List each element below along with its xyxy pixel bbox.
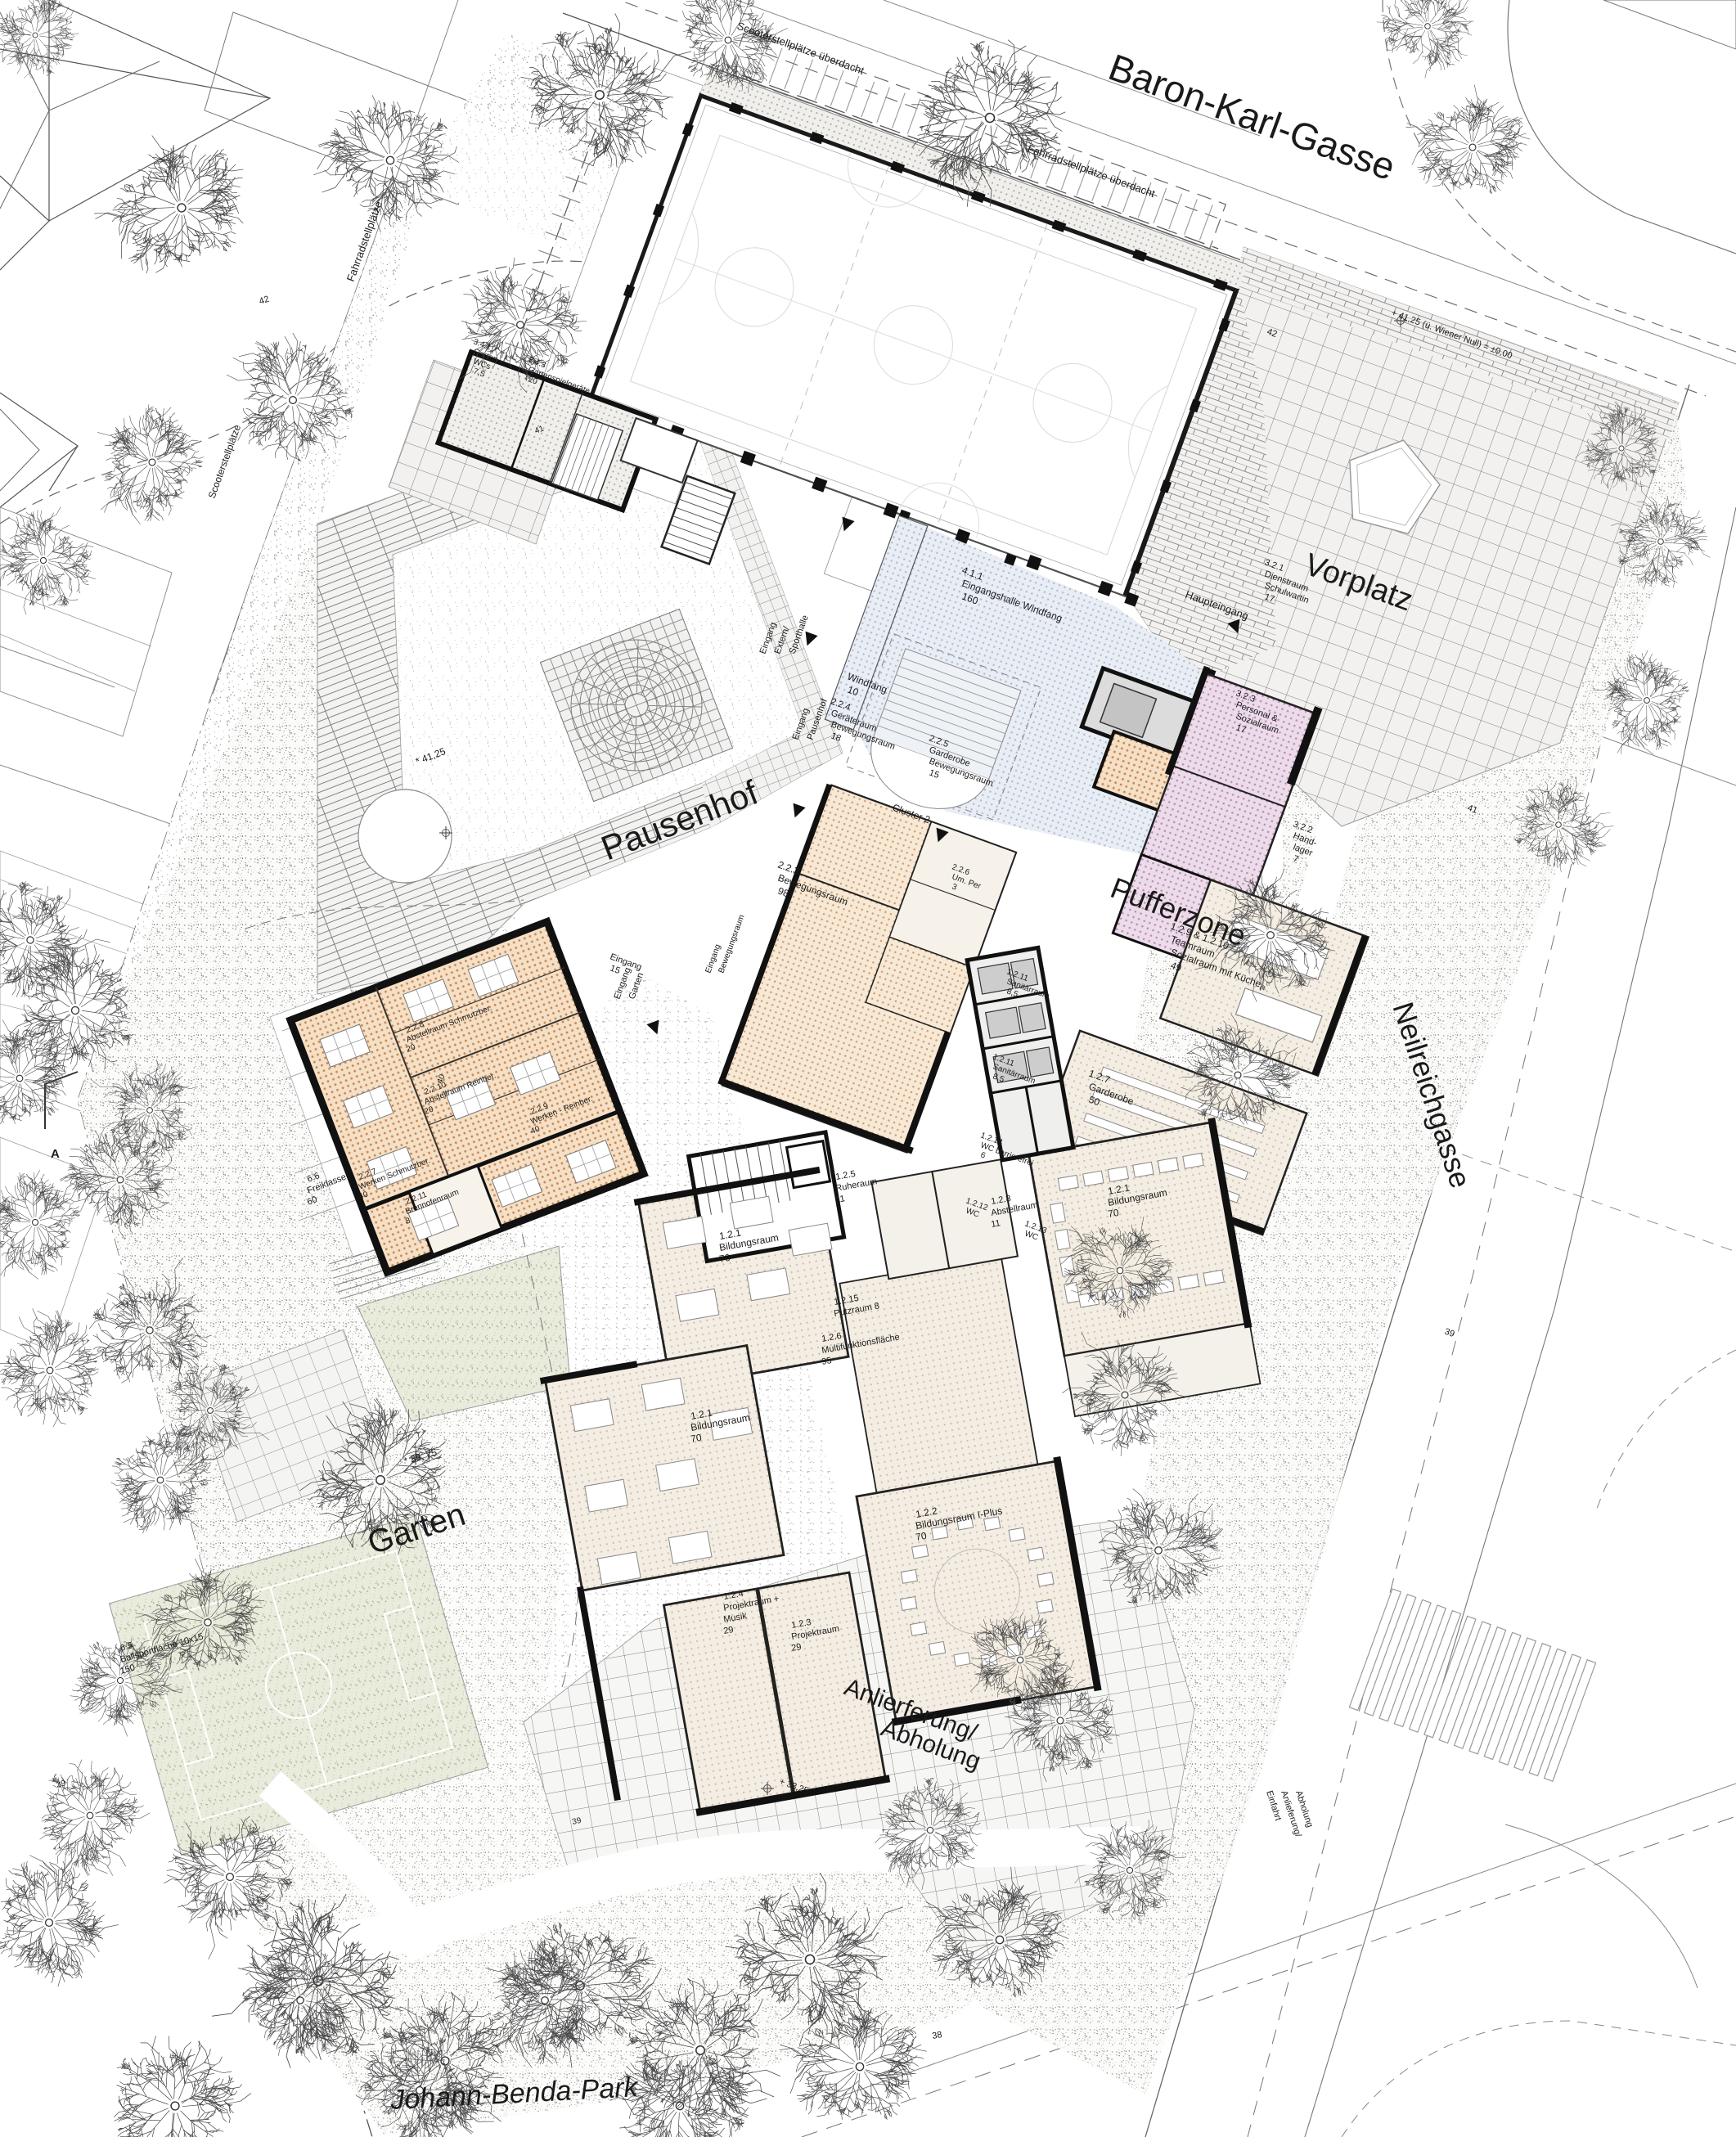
svg-text:95: 95 bbox=[821, 1356, 832, 1367]
svg-text:70: 70 bbox=[915, 1530, 928, 1543]
svg-text:A: A bbox=[51, 1147, 60, 1161]
svg-text:11: 11 bbox=[990, 1218, 1001, 1230]
svg-text:70: 70 bbox=[718, 1252, 731, 1265]
svg-text:38: 38 bbox=[931, 2030, 942, 2041]
svg-text:11: 11 bbox=[834, 1194, 845, 1205]
svg-text:70: 70 bbox=[690, 1432, 703, 1445]
svg-text:29: 29 bbox=[722, 1625, 734, 1636]
svg-text:70: 70 bbox=[1107, 1207, 1120, 1220]
svg-text:29: 29 bbox=[790, 1642, 802, 1653]
